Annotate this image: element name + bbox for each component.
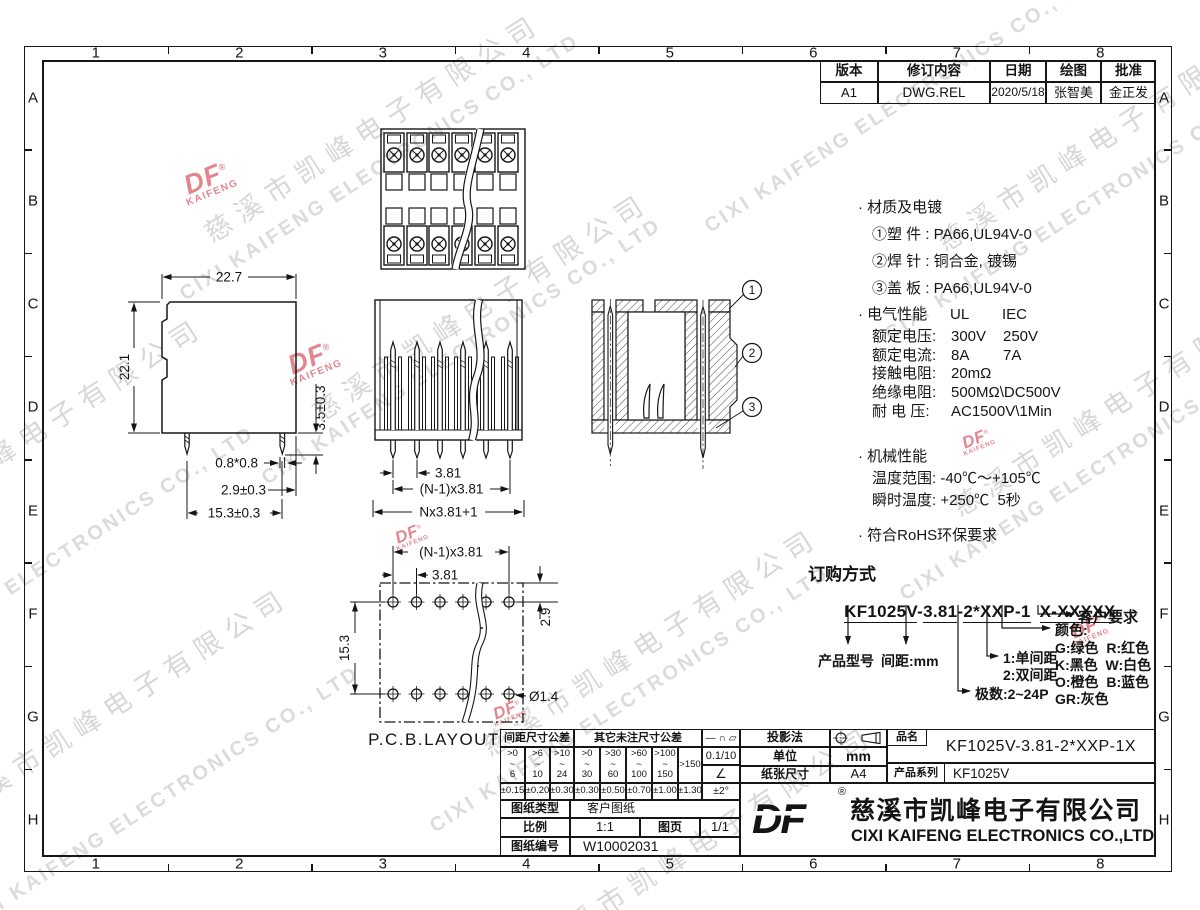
tol-value: ±0.50 — [601, 786, 625, 796]
spec-row-label: 耐 电 压: — [872, 400, 951, 421]
revision-header-approved: 批准 — [1101, 60, 1156, 82]
dim-edge: 2.9 — [538, 608, 553, 627]
frame-tick — [24, 149, 32, 151]
dim-pin-edge: 2.9±0.3 — [221, 483, 266, 498]
frame-zone-label: D — [28, 399, 39, 416]
frame-zone-label: 6 — [809, 856, 817, 873]
frame-zone-label: A — [1159, 89, 1169, 106]
section-view-drawing: 1 2 3 — [583, 270, 773, 475]
scale-value: 1:1 — [570, 818, 640, 837]
tol-value-cell: ±0.70 — [626, 783, 652, 800]
revision-header-version: 版本 — [820, 60, 878, 82]
spec-col-iec: IEC — [1002, 306, 1027, 323]
revision-header-label: 绘图 — [1060, 64, 1087, 79]
frame-tick — [1164, 149, 1172, 151]
label-customer: 客户要求 — [1078, 606, 1138, 627]
spec-title-text: · 电气性能 — [858, 303, 950, 324]
tol-pitch-header: 间距尺寸公差 — [500, 729, 574, 747]
frame-tick — [1164, 562, 1172, 564]
pcb-outline — [380, 583, 523, 722]
label-color-4: GR:灰色 — [1055, 689, 1109, 709]
frame-tick — [455, 46, 457, 54]
tol-range-cell: >30~60 — [600, 747, 626, 783]
sheet-label: 图页 — [640, 818, 700, 837]
revision-approved: 金正发 — [1101, 82, 1156, 104]
dim-height: 22.1 — [117, 354, 132, 380]
frame-tick — [1164, 253, 1172, 255]
revision-date: 2020/5/18 — [990, 82, 1046, 104]
company-logo: DF — [750, 793, 838, 841]
break-line — [462, 583, 486, 722]
dim-pin-length: 3.5±0.3 — [313, 386, 328, 431]
registered-mark: ® — [838, 786, 846, 798]
range-over-text: >150 — [679, 760, 700, 770]
range-bottom: 60 — [608, 770, 619, 780]
terminal-cells-top — [384, 133, 518, 172]
frame-zone-label: D — [1159, 399, 1170, 416]
tol-value-cell: ±1.30 — [678, 783, 702, 800]
unit-value: mm — [830, 747, 887, 766]
spec-row-label: 绝缘电阻: — [872, 381, 951, 402]
frame-tick — [1164, 356, 1172, 358]
spec-row-ul: 300V — [951, 328, 1003, 345]
revision-content: DWG.REL — [878, 82, 990, 104]
spec-row-label: 额定电压: — [872, 325, 951, 346]
ordering-block: 订购方式 KF1025V-3.81-2*XXP-1X-XXXXX 产品型号 间距… — [778, 558, 1178, 733]
spec-block: · 材质及电镀 ①塑 件 : PA66,UL94V-0 ②焊 针 : 铜合金, … — [858, 196, 1158, 546]
revision-header-content: 修订内容 — [878, 60, 990, 82]
frame-tick — [1029, 864, 1031, 872]
frame-zone-label: E — [1159, 502, 1169, 519]
frame-tick — [24, 666, 32, 668]
value-text: 1:1 — [596, 820, 614, 834]
housing-section — [592, 300, 737, 433]
callout-1: 1 — [749, 283, 756, 297]
tol-angle-symbol: ∠ — [702, 765, 740, 783]
frame-zone-label: G — [27, 709, 39, 726]
company-name-en: CIXI KAIFENG ELECTRONICS CO.,LTD — [851, 827, 1154, 846]
revision-header-label: 版本 — [836, 64, 863, 79]
connector-body-outline — [162, 302, 296, 433]
spec-row-label: 接触电阻: — [872, 362, 951, 383]
angle-symbol: ∠ — [715, 767, 727, 781]
revision-header-label: 批准 — [1115, 64, 1142, 79]
label-text: 比例 — [523, 821, 547, 834]
spec-electrical-title: · 电气性能ULIEC — [858, 303, 1027, 324]
revision-value: 2020/5/18 — [991, 86, 1044, 99]
spec-material-item: ③盖 板 : PA66,UL94V-0 — [872, 277, 1032, 298]
order-code-model: KF1025V — [844, 602, 917, 623]
tol-header-text: 其它未注尺寸公差 — [594, 732, 682, 744]
label-text: 单位 — [773, 750, 797, 763]
frame-zone-label: 3 — [379, 856, 387, 873]
frame-tick — [1164, 459, 1172, 461]
dim-span: (N-1)x3.81 — [420, 482, 484, 497]
revision-header-label: 日期 — [1005, 64, 1032, 79]
tol-other-header: 其它未注尺寸公差 — [574, 729, 702, 747]
spec-electrical-row: 额定电压:300V250V — [872, 325, 1038, 346]
revision-version: A1 — [820, 82, 878, 104]
revision-value: 金正发 — [1109, 86, 1148, 100]
product-series-value: KF1025V — [953, 764, 1073, 782]
frame-tick — [1164, 769, 1172, 771]
frame-zone-label: 8 — [1096, 45, 1104, 62]
tol-value-cell: ±0.30 — [574, 783, 600, 800]
callout-3: 3 — [749, 400, 756, 414]
label-text: 投影法 — [767, 731, 803, 744]
label-text: 图纸编号 — [511, 840, 559, 853]
tol-value-cell: ±0.50 — [600, 783, 626, 800]
frame-tick — [311, 864, 313, 872]
dim-hole: Ø1.4 — [529, 689, 559, 704]
value-text: A4 — [851, 767, 867, 781]
spec-electrical-row: 接触电阻:20mΩ — [872, 362, 991, 383]
tol-range-over: >150 — [678, 747, 702, 783]
flatness-symbol: ▱ — [729, 733, 737, 744]
label-row-double: 2:双间距 — [1003, 665, 1057, 685]
drawing-type-label: 图纸类型 — [500, 800, 570, 818]
frame-tick — [742, 46, 744, 54]
frame-tick — [168, 46, 170, 54]
frame-zone-label: 5 — [666, 45, 674, 62]
pcb-caption: P.C.B.LAYOUT — [368, 730, 500, 749]
revision-header-date: 日期 — [990, 60, 1046, 82]
spec-row-ul: 500MΩ\DC500V — [951, 384, 1061, 401]
tol-angle-value: ±2° — [702, 783, 740, 800]
tol-value: ±0.30 — [550, 786, 574, 796]
flatness-text: 0.1/10 — [706, 750, 737, 762]
order-code-poles: 2*XXP-1 — [963, 602, 1030, 623]
tol-value: ±0.30 — [575, 786, 599, 796]
value-text: KF1025V-3.81-2*XXP-1X — [946, 738, 1136, 756]
product-name-value: KF1025V-3.81-2*XXP-1X — [928, 735, 1154, 759]
engineering-drawing-sheet: 慈溪市凯峰电子有限公司CIXI KAIFENG ELECTRONICS CO.,… — [0, 0, 1200, 910]
dim-pitch: 3.81 — [432, 568, 458, 583]
frame-zone-label: B — [28, 192, 38, 209]
label-text: 图页 — [658, 821, 682, 834]
frame-zone-label: F — [1159, 605, 1168, 622]
paper-value: A4 — [830, 766, 887, 783]
frame-tick — [311, 46, 313, 54]
revision-header-label: 修订内容 — [907, 64, 961, 79]
value-text: W10002031 — [583, 839, 659, 854]
frame-zone-label: 6 — [809, 45, 817, 62]
dim-width: 22.7 — [216, 270, 242, 285]
revision-header-drawn: 绘图 — [1046, 60, 1101, 82]
frame-zone-label: 2 — [235, 45, 243, 62]
tol-range-cell: >6~10 — [525, 747, 550, 783]
label-text: 产品系列 — [894, 767, 938, 779]
frame-tick — [24, 356, 32, 358]
value-text: KF1025V — [953, 766, 1009, 781]
drill-holes — [385, 594, 517, 702]
spec-material-item: ①塑 件 : PA66,UL94V-0 — [872, 223, 1032, 244]
top-view-drawing — [380, 128, 526, 270]
spec-mechanical-title: · 机械性能 — [858, 445, 927, 466]
spec-material-item: ②焊 针 : 铜合金, 镀锡 — [872, 250, 1017, 271]
spec-col-ul: UL — [950, 306, 1002, 323]
solder-pin — [280, 433, 285, 454]
frame-zone-label: H — [28, 812, 39, 829]
revision-value: A1 — [841, 86, 857, 100]
frame-zone-label: 7 — [953, 856, 961, 873]
label-text: 图纸类型 — [511, 802, 559, 815]
frame-zone-label: 2 — [235, 856, 243, 873]
solder-pin — [185, 433, 189, 454]
tol-value: ±1.30 — [678, 786, 702, 796]
label-text: 纸张尺寸 — [761, 768, 809, 781]
frame-zone-label: A — [28, 89, 38, 106]
frame-tick — [24, 562, 32, 564]
projection-symbol-cell — [830, 729, 887, 747]
frame-tick — [598, 864, 600, 872]
tol-value: ±1.00 — [653, 786, 677, 796]
straightness-symbol: — — [706, 733, 716, 744]
frame-tick — [168, 864, 170, 872]
range-bottom: 6 — [510, 770, 515, 780]
frame-zone-label: F — [28, 605, 37, 622]
frame-tick — [24, 769, 32, 771]
frame-tick — [455, 864, 457, 872]
label-pitch: 间距:mm — [881, 651, 939, 671]
frame-tick — [1029, 46, 1031, 54]
frame-zone-label: H — [1159, 812, 1170, 829]
label-product-model: 产品型号 — [818, 651, 874, 671]
spec-mechanical-row: 温度范围: -40℃～+105℃ — [872, 467, 1041, 488]
frame-tick — [885, 864, 887, 872]
revision-drawn: 张智美 — [1046, 82, 1101, 104]
range-bottom: 30 — [582, 770, 593, 780]
range-bottom: 150 — [657, 770, 673, 780]
spec-row-ul: AC1500V\1Min — [951, 403, 1052, 420]
tol-value-cell: ±1.00 — [652, 783, 678, 800]
label-poles: 极数:2~24P — [975, 684, 1049, 704]
order-code-pitch: 3.81 — [923, 602, 957, 623]
frame-tick — [598, 46, 600, 54]
callout-2: 2 — [749, 346, 756, 360]
tol-value: ±0.20 — [526, 786, 550, 796]
spec-row-iec: 250V — [1003, 328, 1038, 345]
drawing-number-label: 图纸编号 — [500, 837, 570, 857]
spec-electrical-row: 耐 电 压:AC1500V\1Min — [872, 400, 1052, 421]
value-text: 1/1 — [711, 820, 729, 834]
frame-zone-label: B — [1159, 192, 1169, 209]
spec-electrical-row: 绝缘电阻:500MΩ\DC500V — [872, 381, 1061, 402]
frame-zone-label: 4 — [522, 856, 530, 873]
tol-range-cell: >0~30 — [574, 747, 600, 783]
label-text: 品名 — [896, 731, 918, 743]
company-name-cn: 慈溪市凯峰电子有限公司 — [850, 791, 1142, 827]
revision-value: 张智美 — [1054, 86, 1093, 100]
tol-value: ±0.70 — [627, 786, 651, 796]
projection-label: 投影法 — [740, 729, 830, 747]
tol-range-cell: >100~150 — [652, 747, 678, 783]
value-text: 客户图纸 — [587, 802, 635, 815]
frame-zone-label: C — [28, 296, 39, 313]
frame-zone-label: 5 — [666, 856, 674, 873]
spec-material-title: · 材质及电镀 — [858, 196, 942, 217]
frame-zone-label: E — [28, 502, 38, 519]
tol-range-cell: >0~6 — [500, 747, 525, 783]
frame-zone-label: 8 — [1096, 856, 1104, 873]
range-bottom: 10 — [532, 770, 543, 780]
frame-tick — [885, 46, 887, 54]
first-angle-projection-icon — [832, 730, 885, 746]
dim-pin-size: 0.8*0.8 — [215, 456, 258, 471]
frame-zone-label: 4 — [522, 45, 530, 62]
unit-label: 单位 — [740, 747, 830, 766]
scale-label: 比例 — [500, 818, 570, 837]
product-series-label: 产品系列 — [887, 763, 945, 783]
frame-tick — [24, 253, 32, 255]
range-bottom: 24 — [557, 770, 568, 780]
side-view-drawing: 22.7 22.1 3.5±0.3 0.8*0.8 2.9±0.3 15.3±0… — [118, 256, 353, 536]
tol-value-cell: ±0.15 — [500, 783, 525, 800]
tol-symbols-header: —∩▱ — [702, 729, 740, 747]
frame-zone-label: G — [1158, 709, 1170, 726]
section-pin — [701, 300, 706, 469]
frame-tick — [24, 459, 32, 461]
spec-mechanical-row: 瞬时温度: +250℃ 5秒 — [872, 489, 1021, 510]
terminal-cells-bottom — [384, 226, 518, 265]
arc-symbol: ∩ — [719, 733, 726, 744]
frame-zone-label: 1 — [92, 856, 100, 873]
svg-text:DF: DF — [752, 795, 807, 842]
revision-value: DWG.REL — [902, 86, 965, 101]
section-pin — [608, 299, 613, 466]
drawing-number-value: W10002031 — [570, 837, 740, 857]
break-line — [469, 300, 485, 440]
product-name-label: 品名 — [887, 729, 927, 746]
range-bottom: 100 — [631, 770, 647, 780]
frame-zone-label: 7 — [953, 45, 961, 62]
spec-rohs: · 符合RoHS环保要求 — [858, 524, 997, 545]
reg-text: ® — [838, 786, 846, 798]
dim-pin-span: 15.3±0.3 — [208, 506, 260, 521]
frame-zone-label: 3 — [379, 45, 387, 62]
frame-tick — [742, 864, 744, 872]
tol-value: ±2° — [713, 786, 729, 798]
spec-row-ul: 20mΩ — [951, 365, 991, 382]
dim-span: (N-1)x3.81 — [419, 545, 483, 560]
spec-row-iec: 7A — [1003, 347, 1021, 364]
square-holes — [386, 174, 516, 224]
paper-label: 纸张尺寸 — [740, 766, 830, 783]
drawing-type-value: 客户图纸 — [570, 800, 740, 818]
tol-header-text: 间距尺寸公差 — [504, 732, 570, 744]
value-text: mm — [846, 749, 871, 764]
tol-range-cell: >60~100 — [626, 747, 652, 783]
frame-zone-label: 1 — [92, 45, 100, 62]
frame-zone-label: C — [1159, 296, 1170, 313]
dim-pitch: 3.81 — [435, 466, 461, 481]
tol-value-cell: ±0.20 — [525, 783, 550, 800]
dim-rows: 15.3 — [337, 635, 352, 661]
dim-total: Nx3.81+1 — [419, 505, 477, 520]
front-view-drawing: 3.81 (N-1)x3.81 Nx3.81+1 — [372, 288, 537, 533]
tol-value-cell: ±0.30 — [550, 783, 574, 800]
tol-range-cell: >10~24 — [550, 747, 574, 783]
pcb-layout-drawing: (N-1)x3.81 3.81 15.3 2.9 Ø1.4 P.C.B.LAYO… — [330, 538, 650, 756]
sheet-value: 1/1 — [700, 818, 740, 837]
tol-flatness-value: 0.1/10 — [702, 747, 740, 765]
tol-value: ±0.15 — [501, 786, 525, 796]
frame-tick — [1164, 666, 1172, 668]
